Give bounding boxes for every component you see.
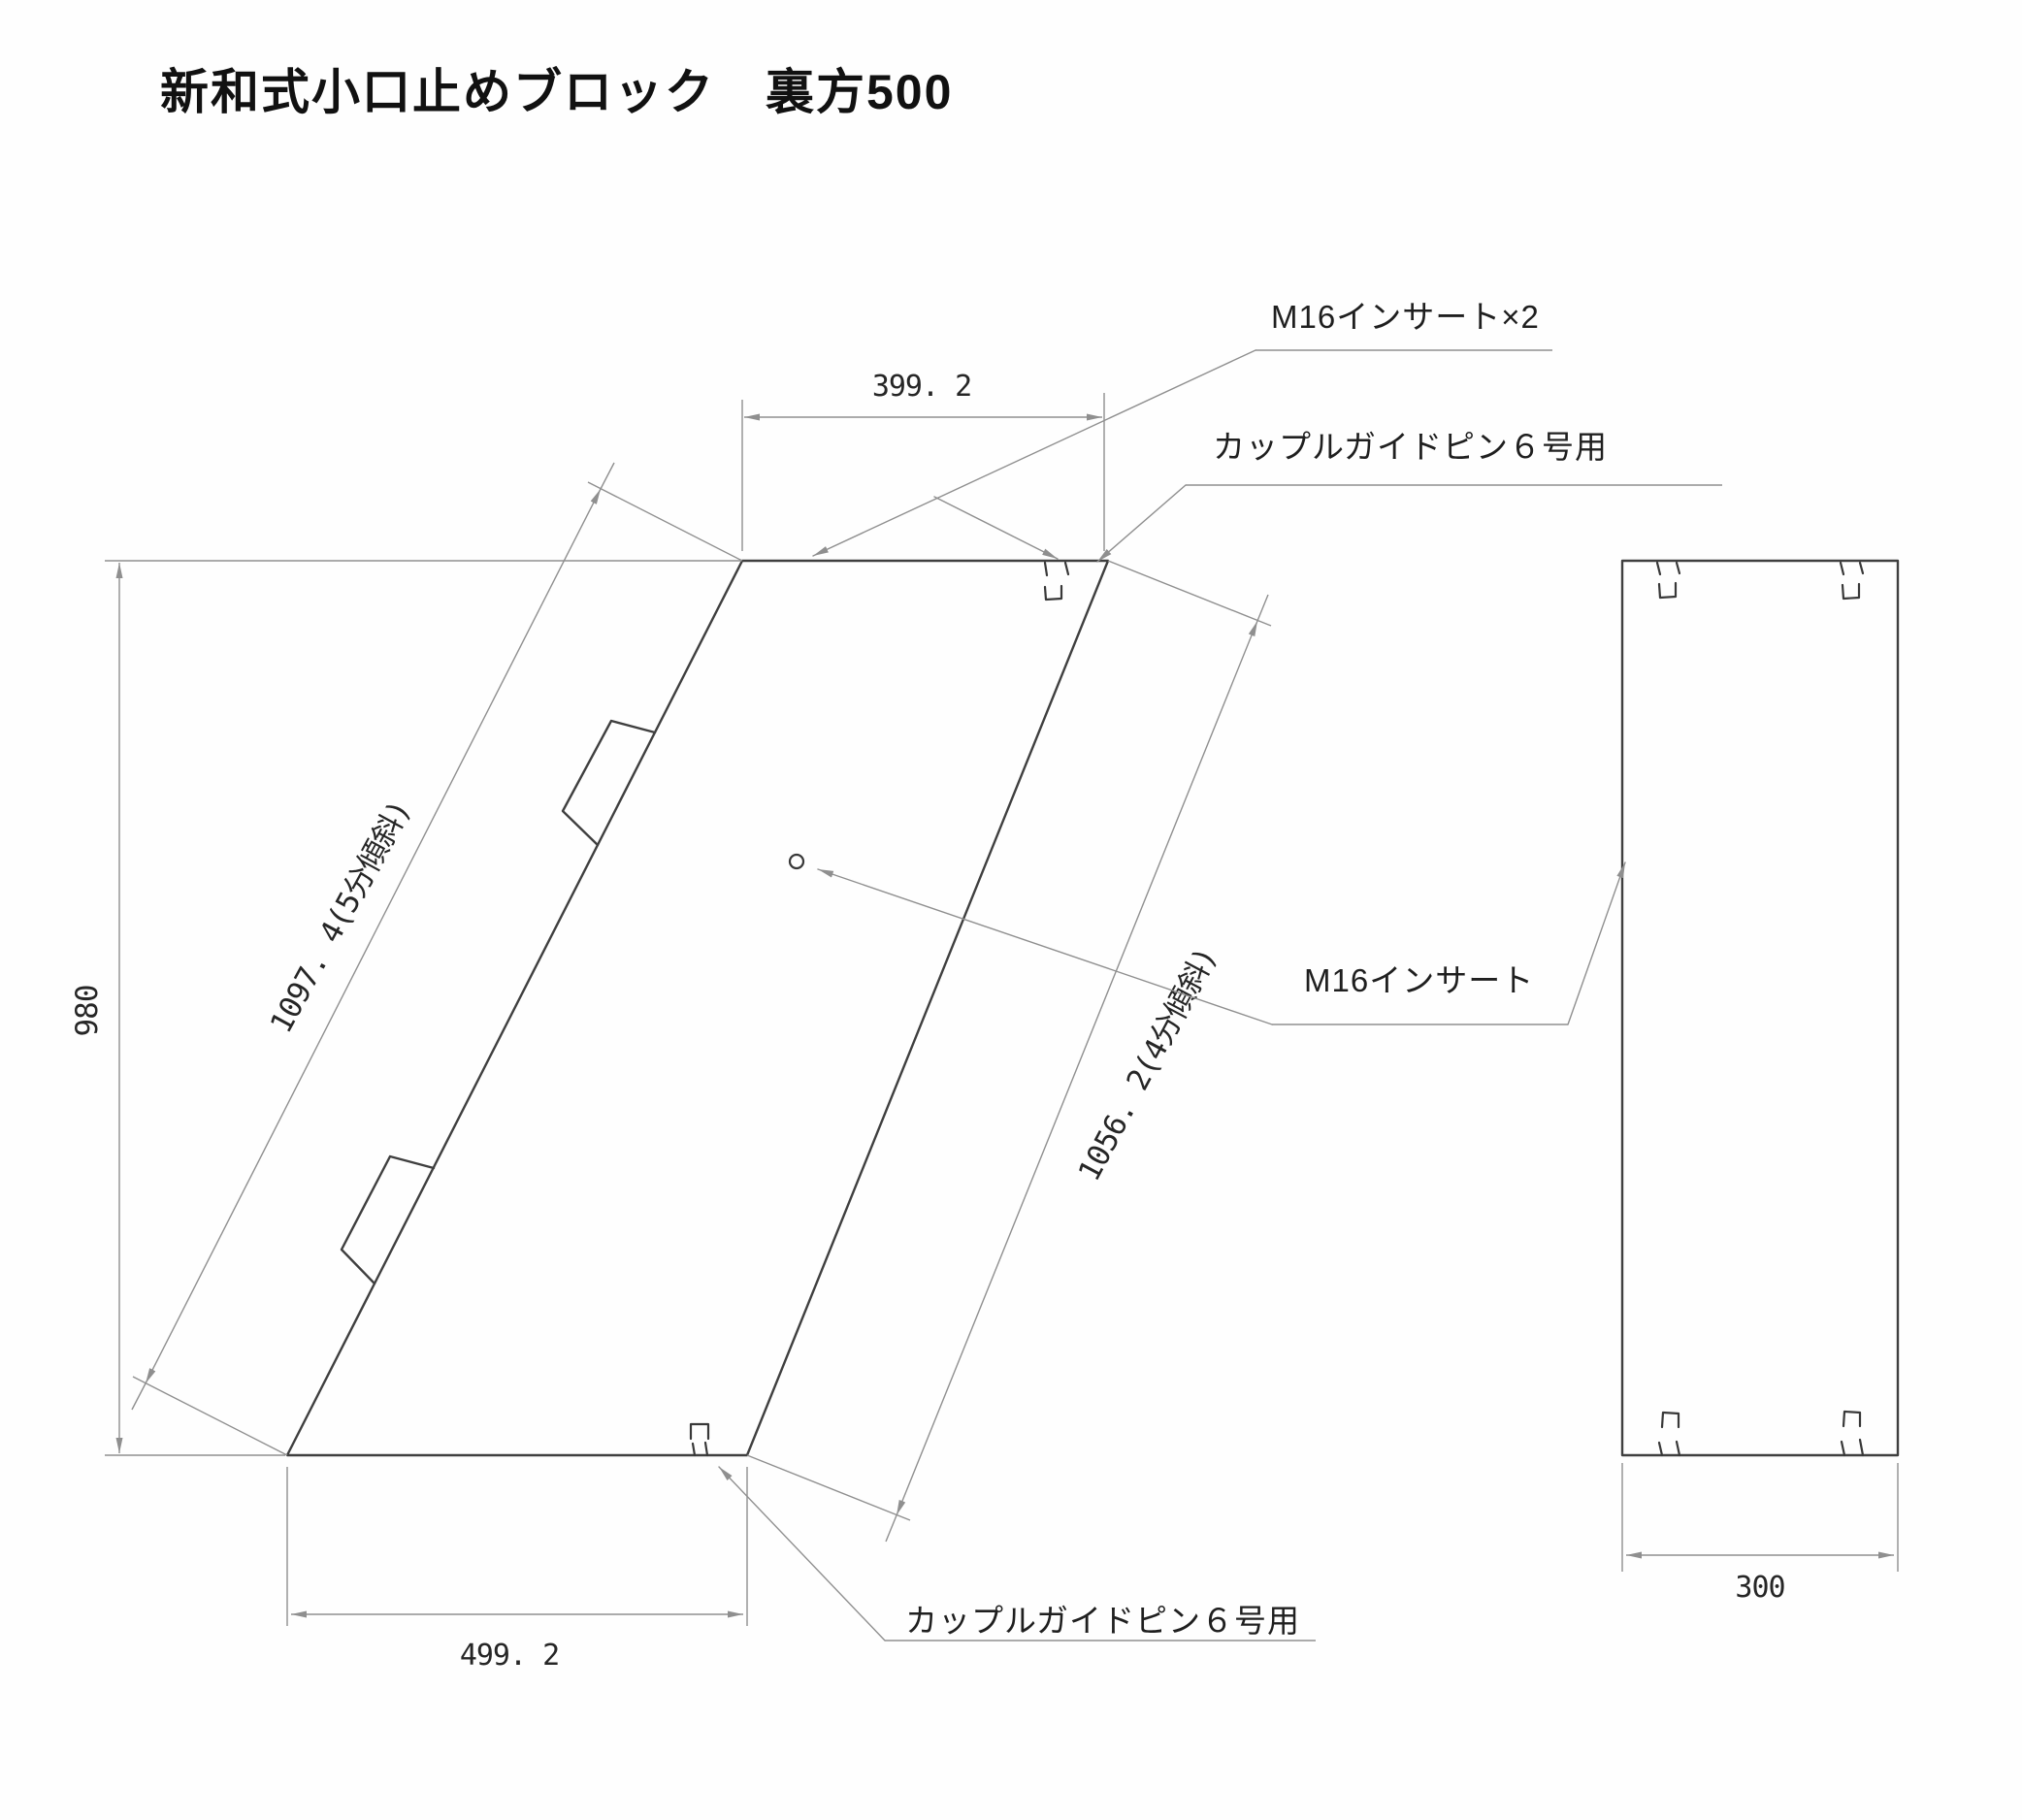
- dim-text-499-2: 499. 2: [460, 1639, 559, 1673]
- drawing-title: 新和式小口止めブロック 裏方500: [160, 65, 953, 119]
- dim-side-width-300: 300: [1622, 1463, 1898, 1605]
- shear-key-upper: [563, 721, 655, 845]
- dim-text-1097-4: 1097. 4(5分傾斜): [264, 795, 418, 1039]
- callout-guide-pin-bottom-label: カップルガイドピン６号用: [905, 1603, 1300, 1639]
- callout-m16-insert-label: M16インサート: [1304, 962, 1534, 998]
- guide-pin-notch-front-top: [1045, 563, 1068, 600]
- shear-key-lower: [342, 1156, 434, 1284]
- guide-pin-notch-side-top-right: [1841, 563, 1863, 599]
- dim-text-399-2: 399. 2: [872, 370, 971, 404]
- front-view-outline: [287, 561, 1108, 1455]
- callout-guide-pin-bottom: カップルガイドピン６号用: [719, 1467, 1316, 1641]
- guide-pin-notch-side-bottom-right: [1842, 1412, 1863, 1455]
- side-view: [1622, 561, 1898, 1455]
- dim-right-slope-1056-2: 1056. 2(4分傾斜): [747, 561, 1271, 1542]
- guide-pin-notch-side-bottom-left: [1659, 1413, 1680, 1455]
- dim-top-width-399-2: 399. 2: [742, 370, 1104, 551]
- m16-insert-mark: [790, 855, 803, 868]
- callout-guide-pin-top-label: カップルガイドピン６号用: [1213, 429, 1608, 465]
- dim-text-980: 980: [70, 986, 105, 1037]
- drawing-sheet: 新和式小口止めブロック 裏方500: [0, 0, 2022, 1820]
- dim-bottom-width-499-2: 499. 2: [287, 1467, 747, 1673]
- dim-height-980: 980: [70, 561, 740, 1455]
- side-view-outline: [1622, 561, 1898, 1455]
- guide-pin-notch-side-top-left: [1657, 563, 1680, 598]
- callout-m16-insert: M16インサート: [818, 862, 1625, 1024]
- dim-left-slope-1097-4: 1097. 4(5分傾斜): [132, 463, 742, 1455]
- guide-pin-notch-front-bottom: [691, 1424, 708, 1455]
- cad-drawing-canvas: 新和式小口止めブロック 裏方500: [0, 0, 2022, 1820]
- front-view: [287, 561, 1108, 1455]
- callout-m16-insert-x2-label: M16インサート×2: [1271, 299, 1540, 335]
- dim-text-1056-2: 1056. 2(4分傾斜): [1072, 942, 1224, 1186]
- callout-guide-pin-top: カップルガイドピン６号用: [1097, 429, 1722, 562]
- dim-text-300: 300: [1735, 1571, 1784, 1605]
